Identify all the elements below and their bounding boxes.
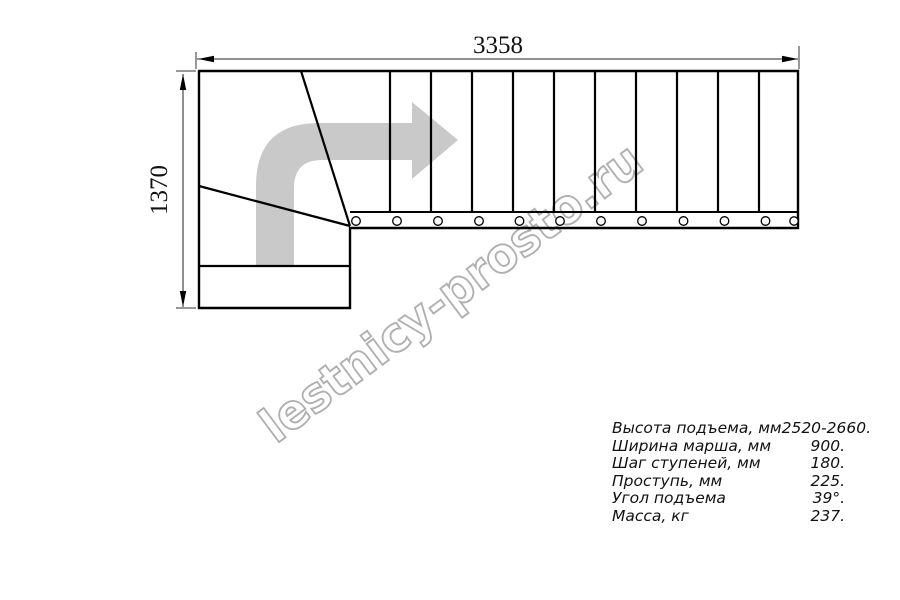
spec-row: Ширина марша, мм 900.	[612, 438, 845, 456]
baluster-circle	[434, 217, 443, 226]
spec-label: Шаг ступеней, мм	[612, 455, 761, 473]
spec-row: Угол подъема 39°.	[612, 490, 845, 508]
spec-label: Проступь, мм	[612, 473, 722, 491]
spec-value: 2520-2660.	[782, 420, 871, 438]
baluster-circle	[720, 217, 729, 226]
baluster-circle	[597, 217, 606, 226]
baluster-circle	[515, 217, 524, 226]
spec-value: 237.	[810, 508, 845, 526]
spec-label: Масса, кг	[612, 508, 689, 526]
spec-value: 39°.	[813, 490, 845, 508]
watermark-text: lestnicy-prosto.ru	[250, 132, 653, 454]
spec-label: Угол подъема	[612, 490, 726, 508]
stair-drawing-canvas: lestnicy-prosto.ru	[0, 0, 900, 600]
dimension-arrowhead	[198, 56, 214, 62]
baluster-circle	[556, 217, 565, 226]
dimension-arrowhead	[180, 291, 186, 307]
spec-row: Проступь, мм 225.	[612, 473, 845, 491]
dimension-arrowhead	[180, 74, 186, 90]
baluster-circle	[790, 217, 798, 225]
baluster-circle	[393, 217, 402, 226]
spec-label: Высота подъема, мм	[612, 420, 782, 438]
spec-row: Масса, кг 237.	[612, 508, 845, 526]
spec-row: Шаг ступеней, мм 180.	[612, 455, 845, 473]
left-dimension: 1370	[146, 71, 196, 308]
spec-value: 900.	[810, 438, 845, 456]
direction-arrow	[256, 102, 458, 266]
baluster-circle	[679, 217, 688, 226]
top-dimension-label: 3358	[473, 32, 523, 59]
baluster-circle	[352, 217, 361, 226]
spec-table: Высота подъема, мм 2520-2660. Ширина мар…	[612, 420, 845, 526]
spec-value: 225.	[810, 473, 845, 491]
spec-label: Ширина марша, мм	[612, 438, 771, 456]
spec-value: 180.	[810, 455, 845, 473]
left-dimension-label: 1370	[146, 165, 173, 215]
spec-row: Высота подъема, мм 2520-2660.	[612, 420, 845, 438]
baluster-circle	[475, 217, 484, 226]
dimension-arrowhead	[782, 56, 798, 62]
baluster-circle	[638, 217, 647, 226]
baluster-circle	[761, 217, 770, 226]
top-dimension: 3358	[196, 32, 799, 69]
